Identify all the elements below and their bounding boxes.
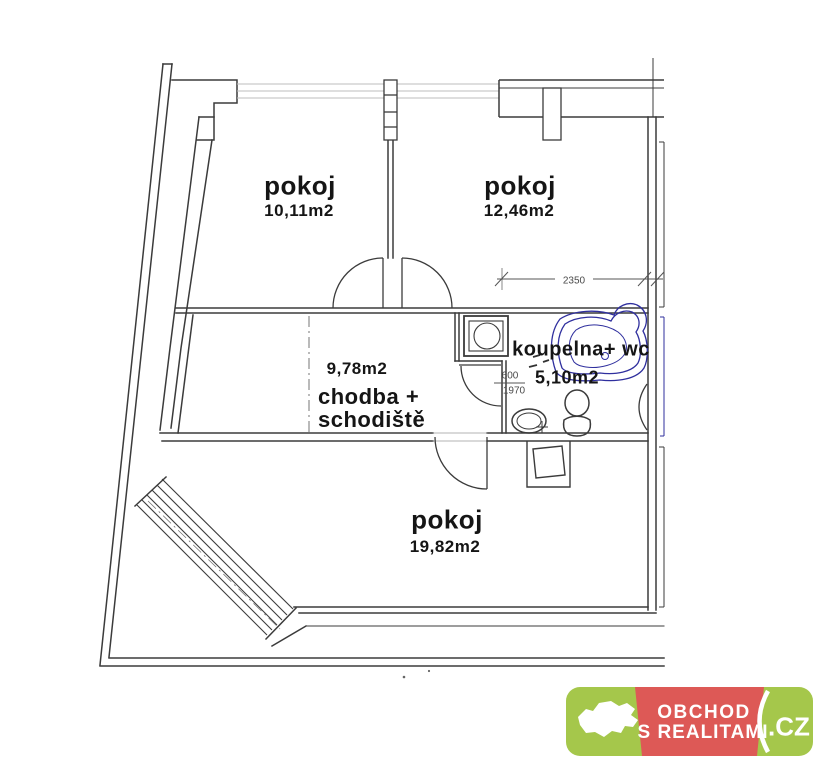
toilet-icon bbox=[564, 390, 591, 436]
railing-lines bbox=[659, 142, 664, 607]
bathroom-label: koupelna+ wc bbox=[512, 339, 650, 362]
chimney-niche bbox=[527, 441, 570, 487]
room-label-pokoj-bottom: pokoj bbox=[411, 505, 483, 536]
dim-text-600: 600 bbox=[502, 371, 519, 382]
room-label-pokoj-top-left: pokoj bbox=[264, 171, 336, 202]
bay-window bbox=[137, 479, 293, 635]
dim-text-1970: 1970 bbox=[503, 386, 525, 397]
print-specks bbox=[403, 670, 430, 678]
logo-tld: .CZ bbox=[768, 712, 810, 743]
room-label-pokoj-top-right: pokoj bbox=[484, 171, 556, 202]
window-glazing bbox=[237, 84, 499, 98]
dim-text-2350: 2350 bbox=[563, 276, 585, 287]
top-right-wall bbox=[499, 58, 664, 140]
hallway-area: 9,78m2 bbox=[327, 359, 388, 379]
washing-machine-icon bbox=[464, 316, 508, 356]
logo-brand-line1: OBCHOD bbox=[657, 702, 750, 724]
room-area-top-right: 12,46m2 bbox=[484, 201, 555, 221]
sink-icon bbox=[512, 409, 548, 433]
room-area-bottom: 19,82m2 bbox=[410, 537, 481, 557]
room-area-top-left: 10,11m2 bbox=[264, 201, 334, 221]
realty-watermark-logo: OBCHOD S REALITAMI .CZ bbox=[566, 687, 813, 756]
hallway-label-line2: schodiště bbox=[318, 407, 425, 433]
czech-republic-map-icon bbox=[578, 701, 638, 737]
floorplan-page: pokoj 10,11m2 pokoj 12,46m2 9,78m2 chodb… bbox=[0, 0, 838, 768]
window-mullion bbox=[384, 80, 397, 140]
logo-brand-line2: S REALITAMI bbox=[638, 722, 769, 744]
bathroom-area: 5,10m2 bbox=[535, 368, 599, 389]
